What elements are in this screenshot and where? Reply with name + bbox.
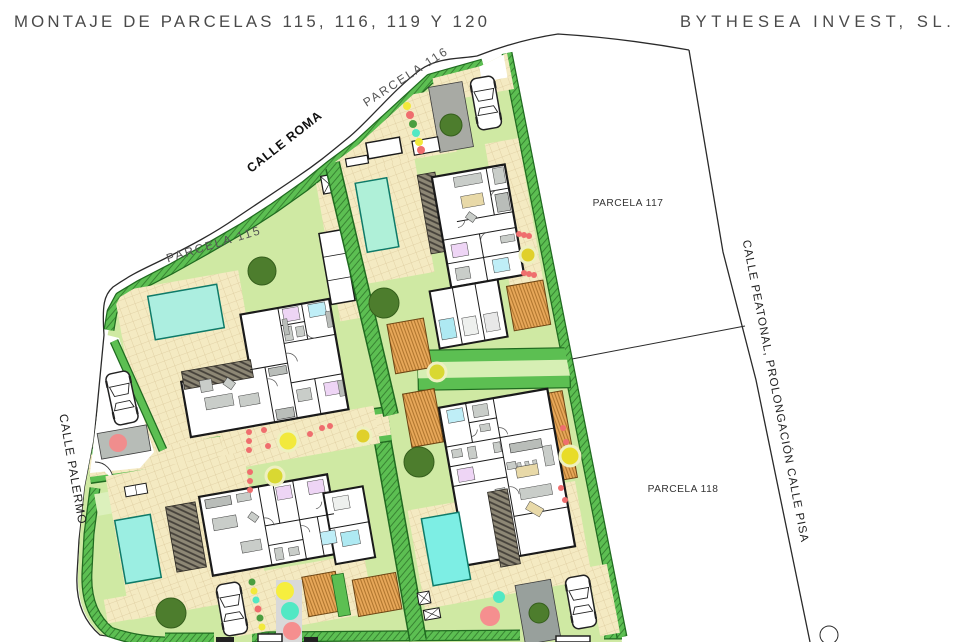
svg-text:PARCELA 117: PARCELA 117: [593, 198, 664, 209]
svg-text:PARCELA 118: PARCELA 118: [648, 484, 719, 495]
svg-text:MONTAJE DE PARCELAS 115, 116,: MONTAJE DE PARCELAS 115, 116, 119 Y 120: [14, 12, 490, 31]
svg-text:BYTHESEA INVEST, SL.: BYTHESEA INVEST, SL.: [680, 13, 955, 31]
